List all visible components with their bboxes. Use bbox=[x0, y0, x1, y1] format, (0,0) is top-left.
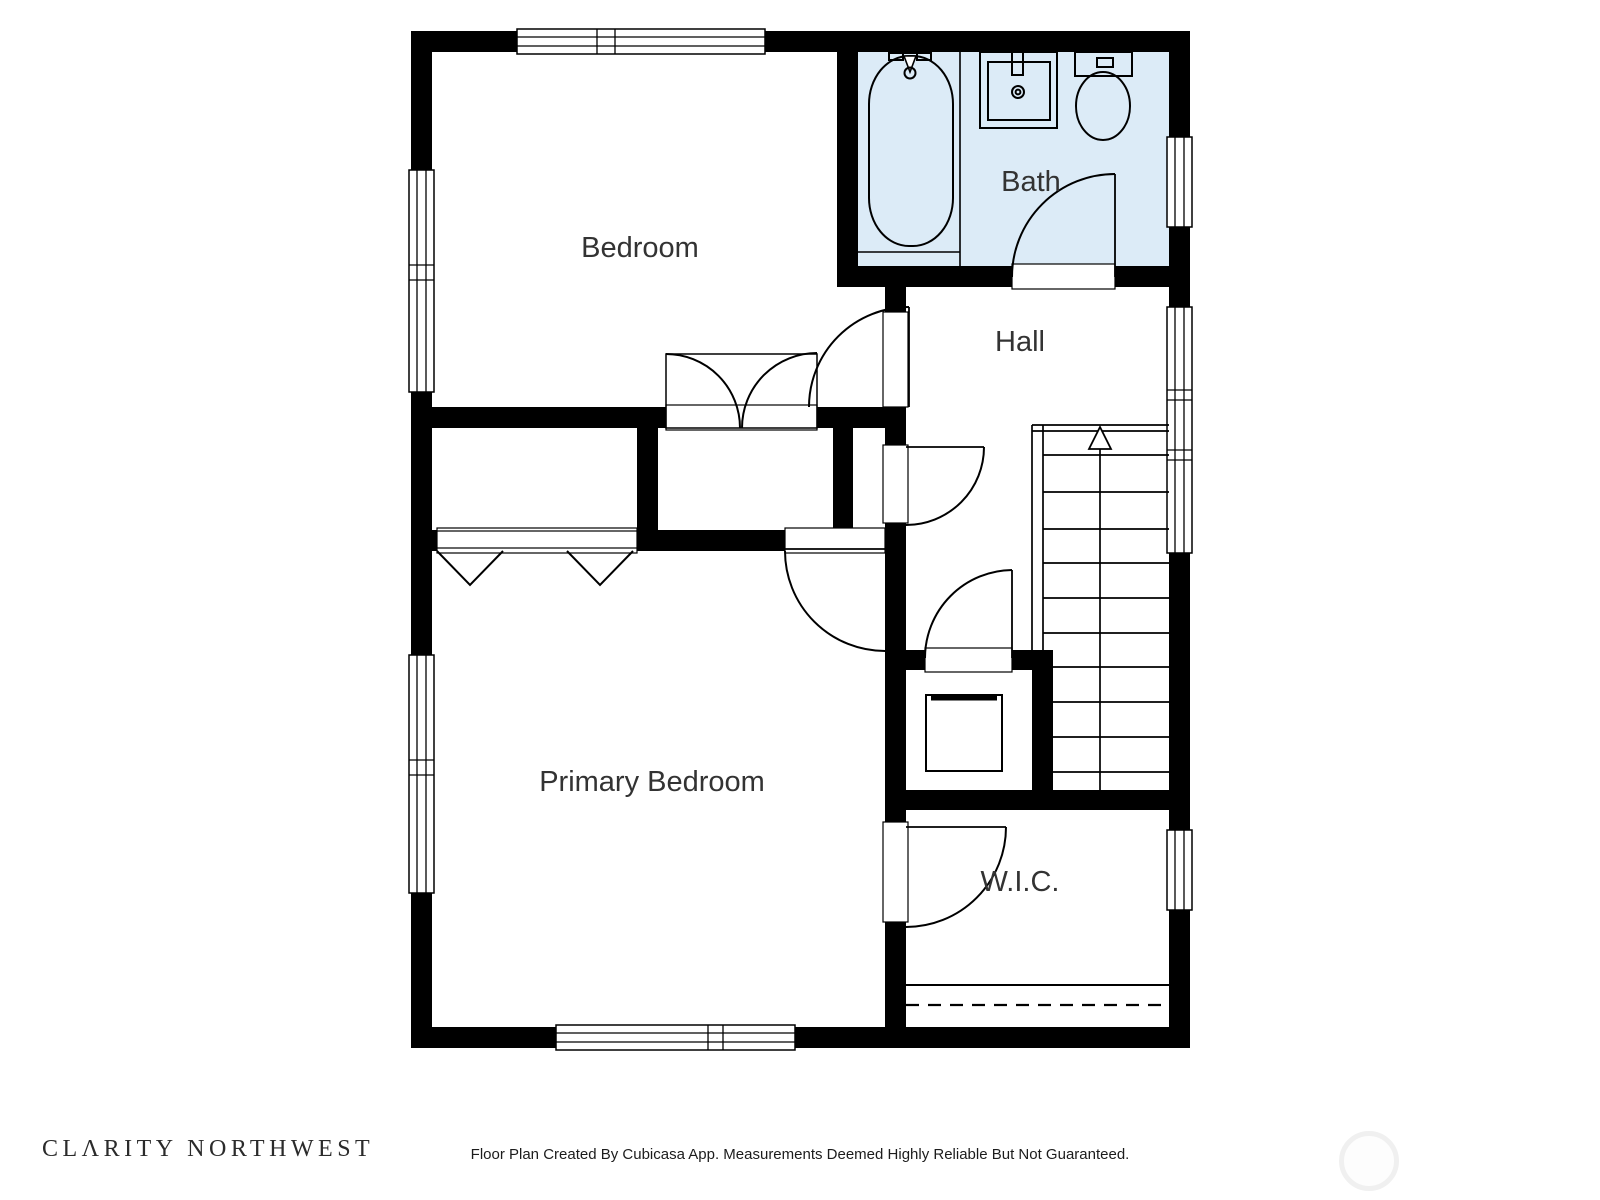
clarity-northwest-logo: CLΛRITY NORTHWEST bbox=[42, 1136, 374, 1163]
laundry-door-opening bbox=[925, 648, 1012, 672]
wall-stairs-bottom bbox=[885, 790, 1190, 810]
primary-bedroom-label: Primary Bedroom bbox=[539, 766, 765, 798]
window-bedroom-top bbox=[517, 29, 765, 54]
window-hall-right bbox=[1167, 307, 1192, 553]
bath-floor bbox=[858, 52, 1169, 266]
bedroom-door-opening bbox=[883, 312, 908, 407]
window-bedroom-left bbox=[409, 170, 434, 392]
window-bath-right bbox=[1167, 137, 1192, 227]
wall-closet-right bbox=[833, 428, 853, 530]
window-primary-left bbox=[409, 655, 434, 893]
wic-label: W.I.C. bbox=[981, 866, 1060, 898]
wall-bath-left bbox=[837, 52, 858, 287]
door-openings bbox=[437, 264, 1115, 922]
window-primary-bottom bbox=[556, 1025, 795, 1050]
wall-outer-bottom bbox=[411, 1027, 1190, 1048]
wic-shelf-lines bbox=[906, 985, 1169, 1005]
bedroom-label: Bedroom bbox=[581, 232, 699, 264]
watermark-circle bbox=[1339, 1131, 1399, 1191]
window-wic-right bbox=[1167, 830, 1192, 910]
hall-closet-door-opening bbox=[883, 445, 908, 523]
floor-plan-page: Bedroom Bath Hall Primary Bedroom W.I.C.… bbox=[0, 0, 1600, 1200]
wall-closet-divider bbox=[637, 407, 658, 551]
bath-door-opening bbox=[1012, 264, 1115, 289]
laundry-door bbox=[925, 570, 1012, 658]
hall-closet-door bbox=[906, 447, 984, 525]
disclaimer-text: Floor Plan Created By Cubicasa App. Meas… bbox=[350, 1146, 1250, 1163]
primary-bedroom-door bbox=[785, 549, 885, 651]
hall-label: Hall bbox=[995, 326, 1045, 358]
bath-label: Bath bbox=[1001, 166, 1061, 198]
wall-bath-bottom bbox=[837, 266, 1169, 287]
wall-bedroom-bottom bbox=[411, 407, 906, 428]
closet-bifold-doors bbox=[437, 531, 637, 585]
wic-door-opening bbox=[883, 822, 908, 922]
washer bbox=[926, 695, 1002, 771]
floor-plan: Bedroom Bath Hall Primary Bedroom W.I.C. bbox=[0, 0, 1600, 1200]
